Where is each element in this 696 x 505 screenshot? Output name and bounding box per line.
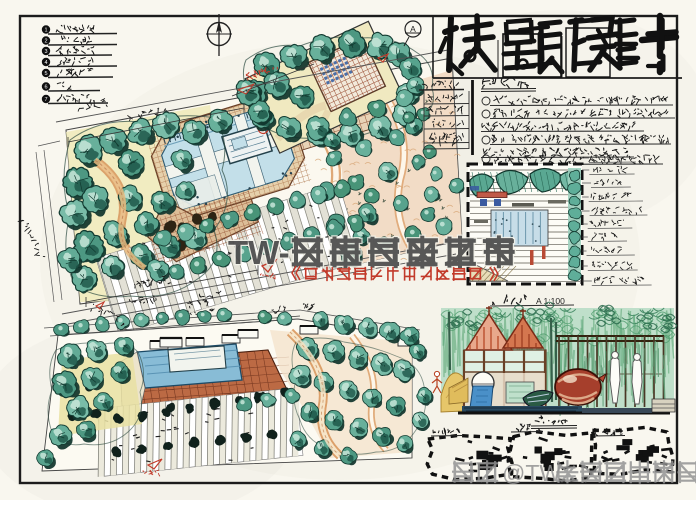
svg-text:3: 3 — [44, 49, 47, 55]
svg-text:TW-: TW- — [228, 234, 290, 271]
svg-text:5: 5 — [44, 71, 47, 77]
svg-text:4: 4 — [44, 60, 47, 66]
svg-text:6: 6 — [44, 85, 47, 91]
svg-text:A 1:100: A 1:100 — [536, 296, 565, 306]
svg-text:7: 7 — [44, 97, 47, 103]
svg-text:2: 2 — [44, 39, 47, 45]
svg-text:1: 1 — [44, 28, 47, 34]
svg-text:@TW: @TW — [502, 460, 561, 486]
